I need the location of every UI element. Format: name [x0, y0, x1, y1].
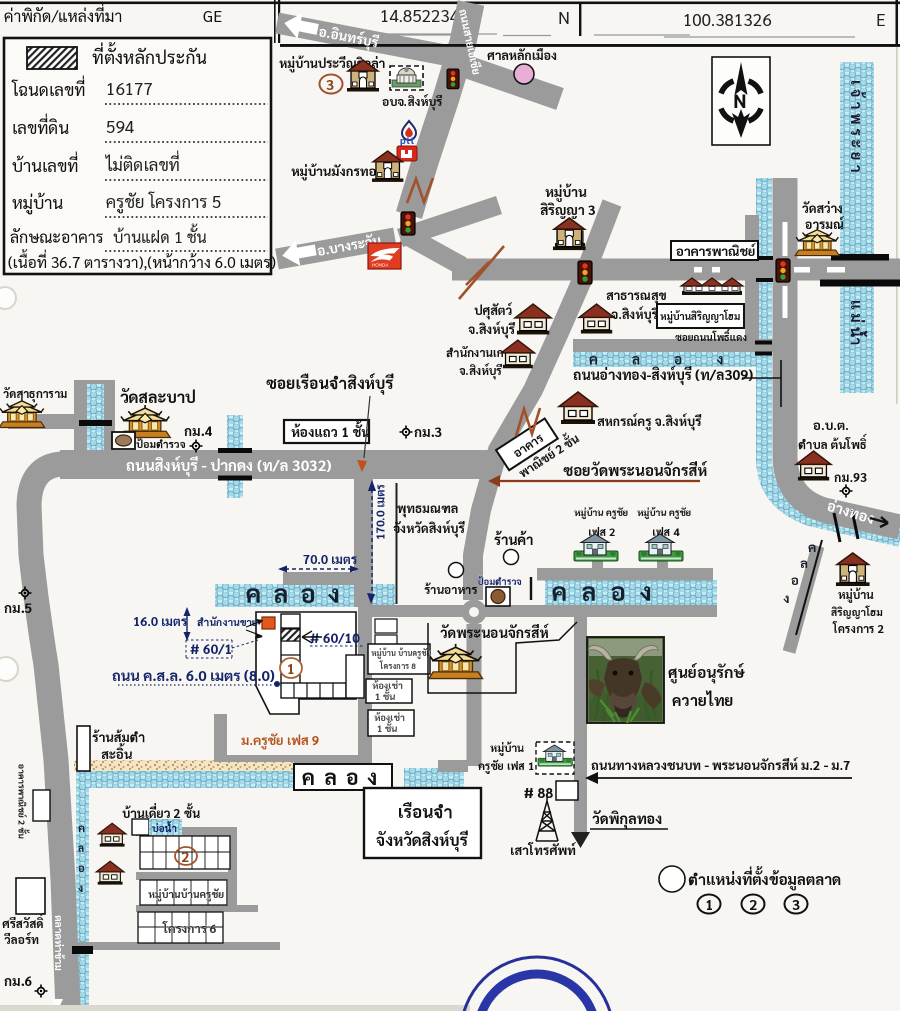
svg-text:# 88: # 88: [524, 784, 554, 802]
svg-text:กม.6: กม.6: [4, 973, 32, 990]
svg-text:# 60/10: # 60/10: [310, 630, 360, 647]
svg-text:ถนนอ่างทอง-สิงห์บุรี (ท/ล309): ถนนอ่างทอง-สิงห์บุรี (ท/ล309): [573, 366, 753, 385]
svg-text:ค่าพิกัด/แหล่งที่มา: ค่าพิกัด/แหล่งที่มา: [4, 3, 123, 26]
svg-text:โฉนดเลขที่: โฉนดเลขที่: [11, 76, 85, 100]
svg-text:จ.สิงห์บุรี: จ.สิงห์บุรี: [611, 306, 659, 324]
svg-text:ถนนทางหลวงชนบท - พระนอนจักรสีห: ถนนทางหลวงชนบท - พระนอนจักรสีห์ ม.2 - ม.…: [591, 756, 850, 774]
svg-text:1: 1: [706, 896, 714, 914]
svg-text:เลขที่ดิน: เลขที่ดิน: [12, 114, 69, 138]
svg-text:อ.บ.ต.: อ.บ.ต.: [813, 417, 849, 434]
svg-text:คลอง: คลอง: [246, 576, 352, 609]
svg-text:บ้านแฝด 1 ชั้น: บ้านแฝด 1 ชั้น: [113, 224, 207, 247]
svg-text:วัดสาธุการาม: วัดสาธุการาม: [3, 386, 67, 403]
svg-text:วัดสละบาป: วัดสละบาป: [120, 386, 196, 407]
svg-text:วัดพิกุลทอง: วัดพิกุลทอง: [592, 809, 662, 830]
svg-text:ป้อมตำรวจ: ป้อมตำรวจ: [477, 575, 522, 588]
svg-text:ร้านค้า: ร้านค้า: [494, 531, 533, 549]
svg-text:3: 3: [792, 896, 800, 914]
svg-text:ง: ง: [78, 880, 84, 895]
svg-text:คลอง: คลอง: [552, 574, 666, 607]
svg-text:หมู่บ้าน ครูชัย: หมู่บ้าน ครูชัย: [637, 506, 691, 520]
svg-text:ม.ครูชัย เฟส 9: ม.ครูชัย เฟส 9: [241, 732, 319, 751]
svg-text:โครงการ 8: โครงการ 8: [379, 660, 416, 671]
svg-text:170.0 เมตร: 170.0 เมตร: [373, 484, 388, 540]
svg-text:เรือนจำ: เรือนจำ: [398, 800, 453, 822]
svg-text:โครงการ 2: โครงการ 2: [832, 621, 884, 636]
svg-text:ซอยเรือนจำสิงห์บุรี: ซอยเรือนจำสิงห์บุรี: [266, 372, 394, 395]
svg-text:ptt: ptt: [400, 134, 414, 147]
svg-text:ป้อมตำรวจ: ป้อมตำรวจ: [136, 437, 186, 451]
svg-text:กม.4: กม.4: [184, 423, 212, 440]
svg-text:ตลาดท่าข้าม: ตลาดท่าข้าม: [52, 915, 65, 971]
svg-text:สิริญญา 3: สิริญญา 3: [540, 201, 596, 219]
svg-text:จ.สิงห์บุรี: จ.สิงห์บุรี: [459, 363, 502, 380]
svg-text:สาธารณสุข: สาธารณสุข: [606, 287, 666, 305]
svg-text:วัดพระนอนจักรสีห์: วัดพระนอนจักรสีห์: [440, 624, 549, 642]
svg-text:ซอยวัดพระนอนจักรสีห์: ซอยวัดพระนอนจักรสีห์: [563, 460, 707, 480]
svg-text:ร้านส้มตำ: ร้านส้มตำ: [92, 728, 145, 746]
svg-text:จ.สิงห์บุรี: จ.สิงห์บุรี: [468, 321, 516, 339]
svg-text:HONDA: HONDA: [372, 263, 388, 268]
svg-text:N: N: [558, 6, 570, 28]
svg-text:100.381326: 100.381326: [683, 8, 771, 30]
svg-text:สหกรณ์ครู จ.สิงห์บุรี: สหกรณ์ครู จ.สิงห์บุรี: [597, 413, 702, 431]
svg-text:16177: 16177: [106, 77, 153, 99]
svg-text:2: 2: [749, 896, 757, 914]
svg-text:กม.93: กม.93: [834, 469, 867, 485]
svg-text:จังหวัดสิงห์บุรี: จังหวัดสิงห์บุรี: [393, 520, 465, 538]
svg-text:(เนื้อที่ 36.7 ตารางวา),(หน้าก: (เนื้อที่ 36.7 ตารางวา),(หน้ากว้าง 6.0 เ…: [8, 249, 276, 272]
svg-text:กม.5: กม.5: [4, 600, 32, 617]
svg-text:14.852234: 14.852234: [380, 4, 459, 26]
svg-text:หมู่บ้าน: หมู่บ้าน: [838, 587, 874, 603]
svg-text:เสาโทรศัพท์: เสาโทรศัพท์: [510, 841, 576, 859]
svg-text:70.0 เมตร: 70.0 เมตร: [303, 551, 358, 567]
svg-text:บ้านเดี่ยว 2 ชั้น: บ้านเดี่ยว 2 ชั้น: [122, 801, 200, 821]
svg-text:อารมณ์: อารมณ์: [805, 216, 845, 232]
svg-text:หมู่บ้าน บ้านครูชัย: หมู่บ้าน บ้านครูชัย: [371, 647, 431, 659]
svg-text:ศาลหลักเมือง: ศาลหลักเมือง: [487, 47, 557, 63]
svg-text:16.0 เมตร: 16.0 เมตร: [133, 613, 188, 629]
svg-text:สิริญญาโฮม: สิริญญาโฮม: [830, 606, 883, 619]
svg-text:# 60/1: # 60/1: [190, 641, 232, 658]
svg-text:ศูนย์อนุรักษ์: ศูนย์อนุรักษ์: [668, 661, 746, 684]
svg-text:พุทธมณฑล: พุทธมณฑล: [397, 500, 458, 518]
svg-text:ร้านอาหาร: ร้านอาหาร: [424, 581, 478, 597]
svg-text:อ: อ: [791, 572, 799, 589]
svg-text:บ่อน้ำ: บ่อน้ำ: [152, 821, 177, 835]
svg-text:ค: ค: [808, 539, 816, 556]
svg-text:โครงการ 6: โครงการ 6: [163, 920, 216, 936]
svg-text:ซอยถนนโพธิ์แดง: ซอยถนนโพธิ์แดง: [675, 328, 747, 344]
svg-text:อบจ.สิงห์บุรี: อบจ.สิงห์บุรี: [382, 93, 443, 111]
svg-text:วีลอร์ท: วีลอร์ท: [4, 931, 39, 947]
svg-text:หมู่บ้าน: หมู่บ้าน: [545, 183, 587, 203]
svg-text:จังหวัดสิงห์บุรี: จังหวัดสิงห์บุรี: [376, 829, 468, 852]
svg-text:ควายไทย: ควายไทย: [672, 689, 734, 710]
svg-text:ถนน ค.ส.ล. 6.0 เมตร (8.0): ถนน ค.ส.ล. 6.0 เมตร (8.0): [112, 667, 276, 685]
svg-text:1: 1: [287, 660, 295, 678]
svg-text:ล: ล: [78, 840, 85, 855]
svg-text:บ้านเลขที่: บ้านเลขที่: [12, 152, 78, 176]
svg-text:ตำแหน่งที่ตั้งข้อมูลตลาด: ตำแหน่งที่ตั้งข้อมูลตลาด: [688, 865, 841, 891]
svg-text:กม.3: กม.3: [414, 424, 442, 441]
svg-text:ครูชัย โครงการ 5: ครูชัย โครงการ 5: [106, 190, 221, 214]
svg-text:ง: ง: [783, 590, 789, 607]
svg-text:ครูชัย เฟส 1: ครูชัย เฟส 1: [478, 758, 534, 774]
svg-text:หมู่บ้านบ้านครูชัย: หมู่บ้านบ้านครูชัย: [148, 888, 225, 902]
svg-text:หมู่บ้านมังกรทอง: หมู่บ้านมังกรทอง: [291, 162, 383, 182]
svg-text:หมู่บ้าน: หมู่บ้าน: [12, 191, 63, 215]
svg-text:E: E: [876, 8, 885, 30]
svg-text:ล: ล: [800, 555, 808, 572]
svg-text:ปศุสัตว์: ปศุสัตว์: [474, 302, 513, 320]
svg-text:เจ้าพระยา: เจ้าพระยา: [847, 80, 866, 176]
svg-text:ถนนสิงห์บุรี - ปากดง (ท/ล 3032: ถนนสิงห์บุรี - ปากดง (ท/ล 3032): [126, 455, 332, 477]
svg-text:ค: ค: [78, 820, 85, 835]
svg-text:ลักษณะอาคาร: ลักษณะอาคาร: [10, 226, 103, 247]
svg-text:GE: GE: [203, 5, 222, 26]
svg-text:ศรีสวัสดิ์: ศรีสวัสดิ์: [2, 913, 44, 931]
svg-text:อาคารพาณิชย์: อาคารพาณิชย์: [676, 242, 755, 260]
svg-text:สำนักงานขาย: สำนักงานขาย: [197, 616, 259, 629]
svg-text:หมู่บ้านสิริญญาโฮม: หมู่บ้านสิริญญาโฮม: [660, 310, 741, 324]
svg-text:594: 594: [106, 115, 134, 137]
svg-text:3: 3: [326, 76, 334, 94]
svg-text:หมู่บ้าน ครูชัย: หมู่บ้าน ครูชัย: [574, 506, 628, 520]
svg-text:แม่น้ำ: แม่น้ำ: [847, 300, 868, 349]
svg-text:วัดสว่าง: วัดสว่าง: [802, 200, 843, 216]
svg-text:อ: อ: [78, 860, 85, 875]
svg-text:ไม่ติดเลขที่: ไม่ติดเลขที่: [105, 151, 180, 175]
svg-text:N: N: [733, 89, 746, 113]
svg-text:คลอง: คลอง: [302, 763, 386, 790]
svg-text:ตำบล ต้นโพธิ์: ตำบล ต้นโพธิ์: [798, 434, 867, 452]
svg-text:หมู่บ้าน: หมู่บ้าน: [490, 740, 525, 756]
svg-text:2: 2: [181, 848, 189, 866]
